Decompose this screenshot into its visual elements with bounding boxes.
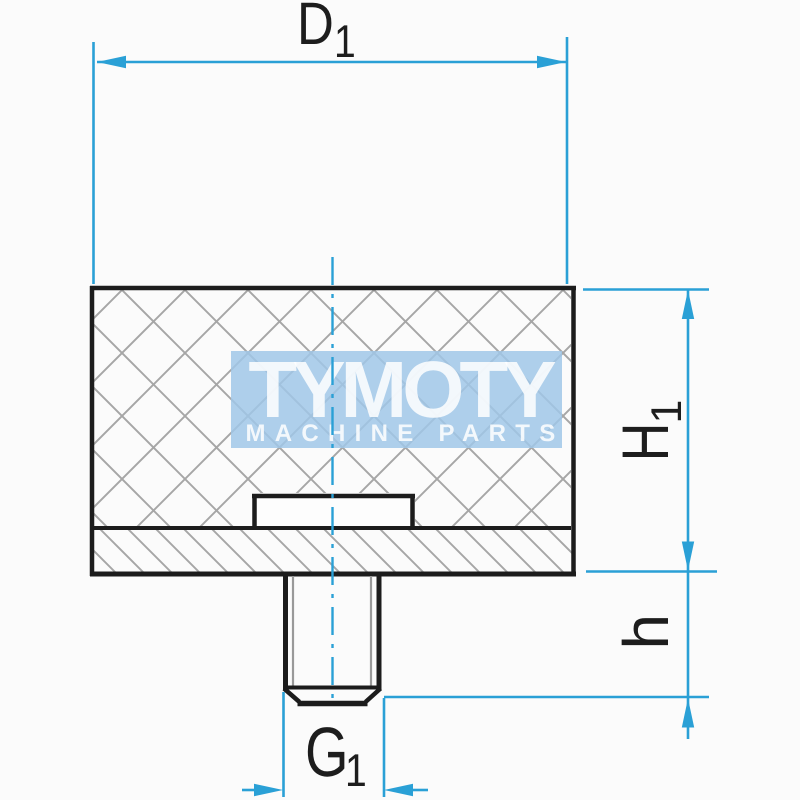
svg-text:G: G: [305, 713, 349, 791]
svg-text:MACHINE PARTS: MACHINE PARTS: [245, 420, 564, 447]
svg-text:1: 1: [345, 744, 367, 796]
svg-text:1: 1: [643, 400, 691, 424]
svg-text:D: D: [297, 0, 334, 57]
svg-text:H: H: [608, 422, 682, 461]
svg-text:h: h: [610, 614, 682, 650]
svg-text:1: 1: [334, 15, 356, 67]
